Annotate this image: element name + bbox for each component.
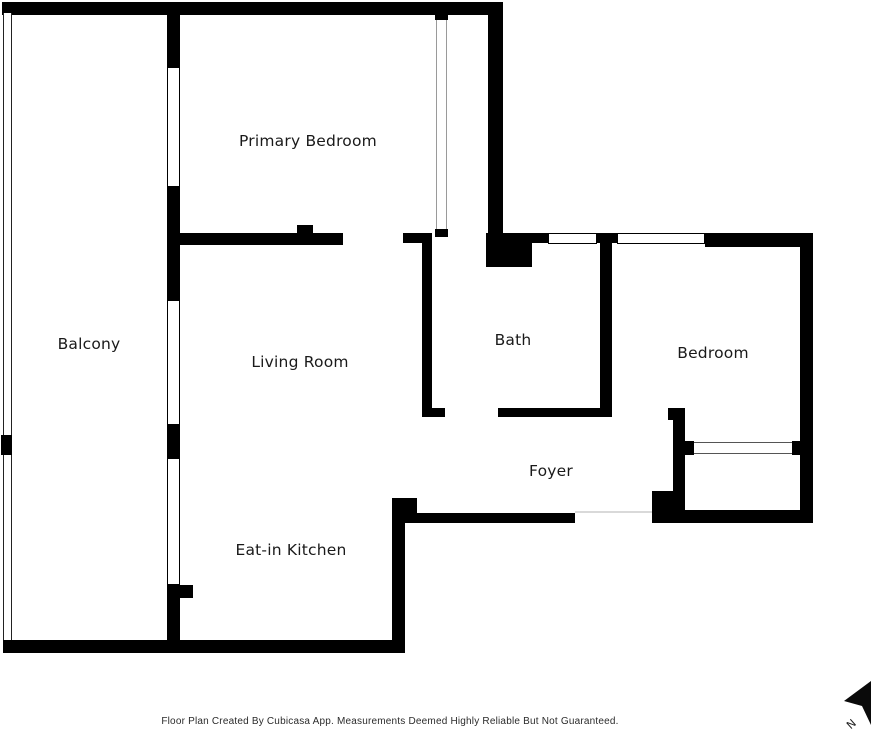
- wall-left-kitchen-bump: [180, 585, 193, 598]
- balcony-railing: [3, 13, 12, 640]
- wall-kitchen-right: [392, 498, 405, 653]
- wall-top: [2, 2, 503, 15]
- bath-plumbing-chase: [486, 233, 532, 267]
- balcony-railing-post: [1, 435, 12, 455]
- label-primary-bedroom: Primary Bedroom: [239, 132, 377, 150]
- wall-primary-right: [488, 15, 503, 233]
- footer-disclaimer: Floor Plan Created By Cubicasa App. Meas…: [0, 716, 780, 727]
- window-bath: [548, 233, 597, 244]
- wall-bedroom-closet: [673, 408, 685, 510]
- window-living-balcony: [167, 300, 180, 425]
- floor-plan-canvas: Primary Bedroom Balcony Living Room Bath…: [0, 0, 888, 744]
- closet-track-cap-left: [685, 441, 694, 455]
- wall-left-kitchen: [167, 585, 180, 648]
- closet-sliding-doors: [694, 442, 792, 454]
- wall-left-upper: [167, 15, 180, 67]
- label-eat-in-kitchen: Eat-in Kitchen: [235, 541, 346, 559]
- label-bath: Bath: [495, 331, 532, 349]
- label-living-room: Living Room: [251, 353, 348, 371]
- label-balcony: Balcony: [58, 335, 121, 353]
- slider-cap-bottom: [435, 229, 448, 237]
- wall-bath-top-mid: [532, 233, 548, 243]
- wall-bedroom-closet-tab: [668, 408, 685, 420]
- window-bedroom: [617, 233, 705, 244]
- label-bedroom: Bedroom: [677, 344, 749, 362]
- wall-foyer-bottom: [405, 513, 575, 523]
- wall-bottom: [3, 640, 405, 653]
- window-primary-balcony: [167, 67, 180, 187]
- wall-bedroom-right: [800, 233, 813, 523]
- wall-bath-left-foot: [422, 408, 445, 417]
- wall-bath-left: [422, 243, 432, 408]
- wall-bath-right: [600, 233, 612, 417]
- wall-bedroom-top: [705, 233, 813, 247]
- wall-living-top: [167, 233, 343, 245]
- slider-cap-top: [435, 15, 448, 20]
- closet-track-cap-right: [792, 441, 805, 455]
- wall-left-lower: [167, 425, 180, 458]
- label-foyer: Foyer: [529, 462, 573, 480]
- wall-bath-bottom: [498, 408, 612, 417]
- compass-north-label: N: [844, 717, 859, 732]
- wall-bedroom-bottom: [652, 510, 813, 523]
- wall-hall-stub: [403, 233, 432, 243]
- north-arrow-icon: N: [836, 672, 880, 734]
- wall-living-top-bump: [297, 225, 313, 233]
- entry-door-threshold: [575, 511, 652, 513]
- sliding-door-primary-closet: [436, 17, 447, 231]
- sliding-door-balcony: [167, 458, 180, 585]
